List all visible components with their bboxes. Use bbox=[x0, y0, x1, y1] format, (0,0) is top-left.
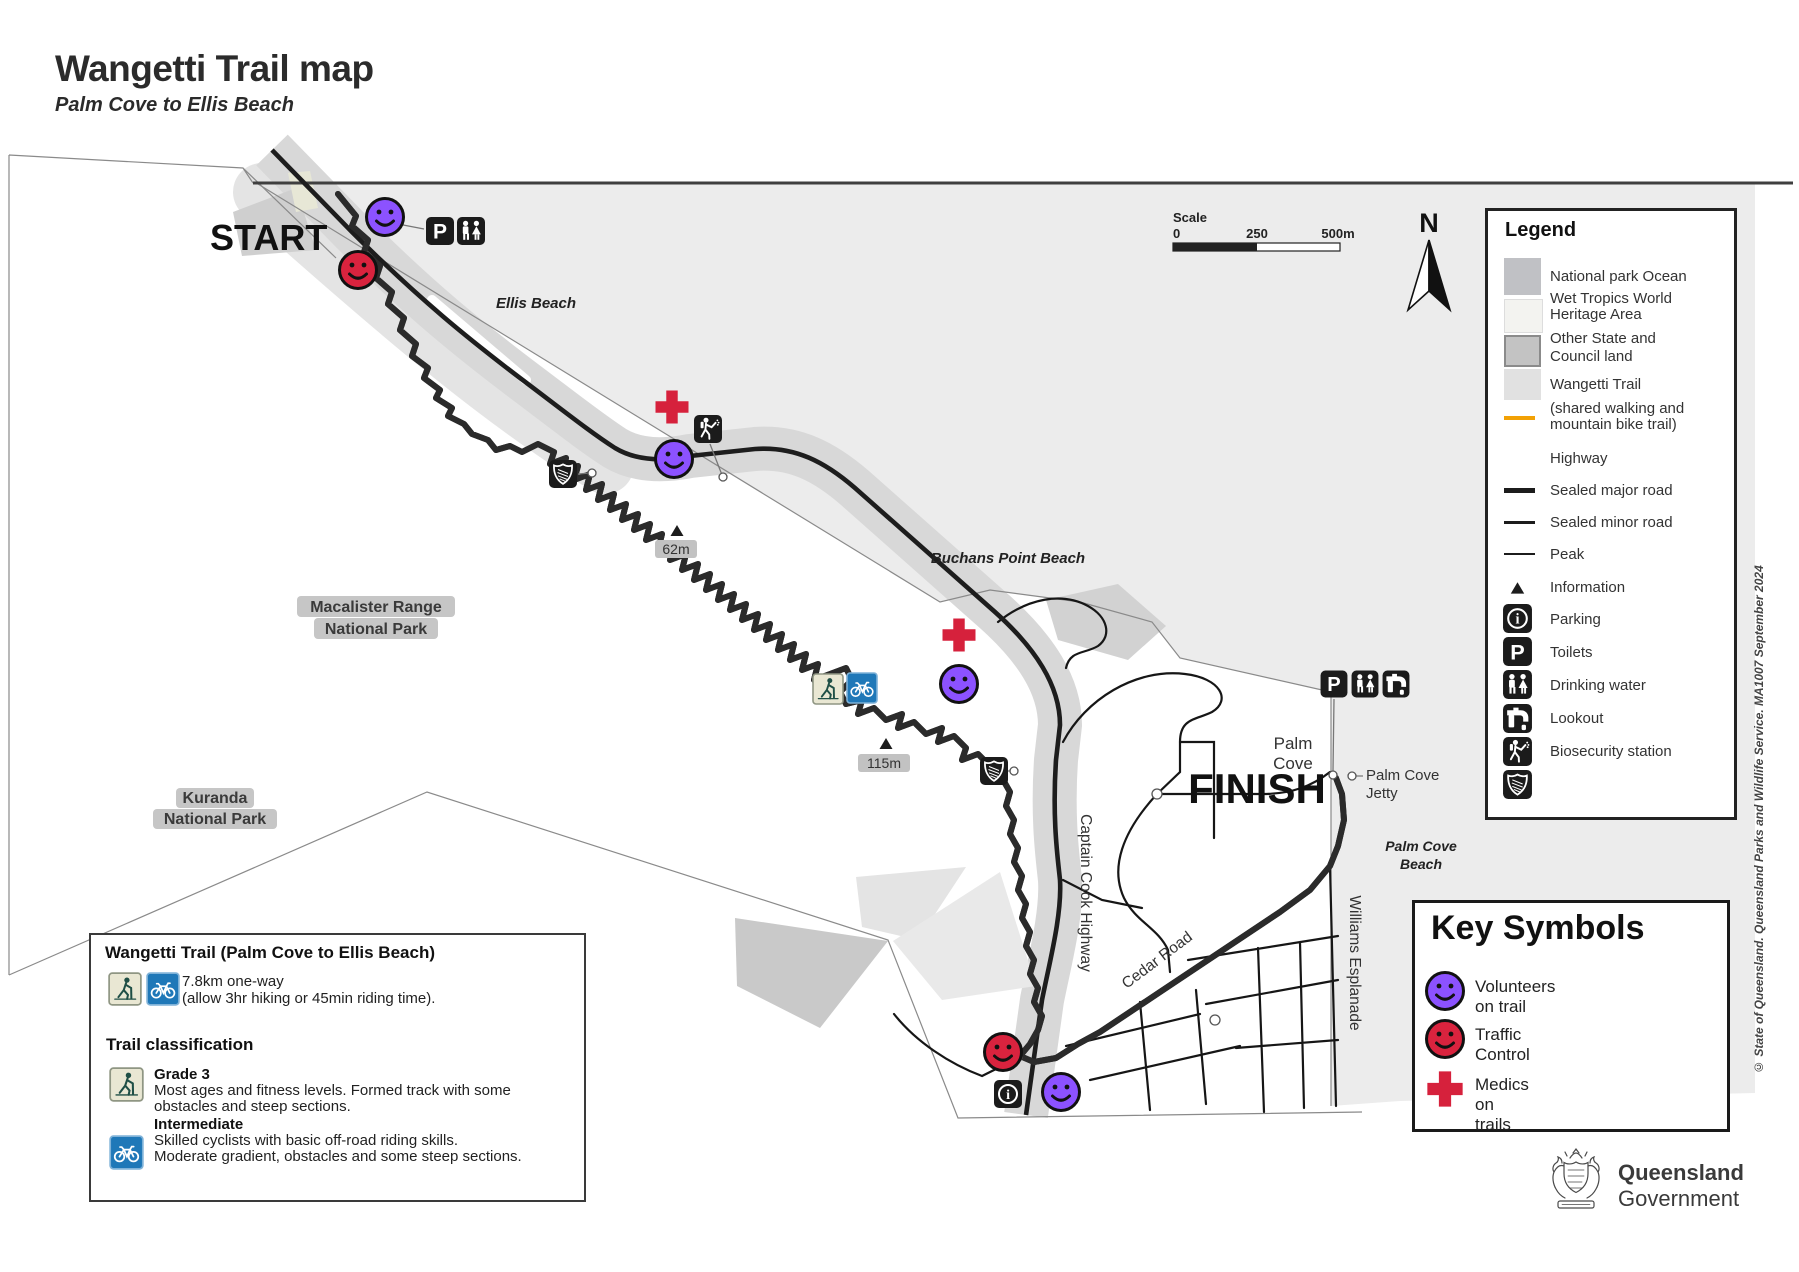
cedar-road-label: Cedar Road bbox=[1119, 928, 1196, 992]
drinking-water-tap-icon bbox=[1502, 703, 1533, 734]
biosecurity-station-icon bbox=[694, 415, 722, 443]
north-label: N bbox=[1419, 208, 1439, 238]
legend-item-label: Sealed major road bbox=[1550, 483, 1673, 499]
key-symbols-label: Traffic Control bbox=[1475, 1025, 1530, 1065]
traffic-control-smiley-icon bbox=[340, 252, 377, 289]
medic-cross-icon bbox=[943, 619, 976, 652]
cycling-trail-marker-icon bbox=[847, 673, 877, 703]
distance-line1: 7.8km one-way bbox=[182, 973, 284, 990]
legend-item-label: Heritage Area bbox=[1550, 306, 1642, 323]
legend-item-label: (shared walking and bbox=[1550, 400, 1684, 417]
hiking-trail-marker-icon bbox=[813, 674, 843, 704]
intermediate-line1: Skilled cyclists with basic off-road rid… bbox=[154, 1132, 458, 1149]
swatch-other-state-council bbox=[1504, 335, 1541, 367]
kuranda-label-line2: National Park bbox=[164, 811, 266, 828]
scale-tick-250: 250 bbox=[1246, 226, 1268, 241]
toilets-icon bbox=[1352, 671, 1379, 698]
volunteers-smiley-icon bbox=[941, 666, 978, 703]
classification-title: Trail classification bbox=[106, 1035, 253, 1055]
coat-of-arms-icon bbox=[1540, 1146, 1612, 1222]
trail-line-symbol bbox=[1504, 416, 1535, 420]
palm-cove-label-line1: Palm bbox=[1274, 734, 1313, 753]
legend-item-label: National park Ocean bbox=[1550, 269, 1687, 285]
volunteers-smiley-icon bbox=[1423, 969, 1467, 1013]
key-symbols-label: Medics on trails bbox=[1475, 1075, 1529, 1135]
copyright-notice: © State of Queensland. Queensland Parks … bbox=[1752, 565, 1774, 1075]
legend-item-label: Toilets bbox=[1550, 645, 1593, 661]
ellis-beach-label: Ellis Beach bbox=[496, 295, 576, 312]
trail-info-panel: Wangetti Trail (Palm Cove to Ellis Beach… bbox=[89, 933, 586, 1202]
key-symbols-label: Volunteers on trail bbox=[1475, 977, 1555, 1017]
intermediate-line2: Moderate gradient, obstacles and some st… bbox=[154, 1148, 522, 1165]
volunteers-smiley-icon bbox=[367, 199, 404, 236]
government-name: Queensland bbox=[1618, 1160, 1744, 1186]
parking-icon bbox=[1321, 671, 1348, 698]
legend-item-label: Biosecurity station bbox=[1550, 744, 1672, 760]
williams-esplanade-label: Williams Esplanade bbox=[1346, 895, 1363, 1030]
shield-icon bbox=[1502, 769, 1533, 800]
sealed-minor-road-symbol bbox=[1504, 521, 1535, 524]
volunteers-smiley-icon bbox=[1043, 1074, 1080, 1111]
peak-line-symbol bbox=[1504, 553, 1535, 555]
peak-115m: 115m bbox=[858, 738, 910, 772]
grade-line1: Most ages and fitness levels. Formed tra… bbox=[154, 1082, 511, 1099]
legend-title: Legend bbox=[1505, 219, 1576, 242]
peak-115m-label: 115m bbox=[867, 755, 901, 771]
toilets-icon bbox=[1502, 669, 1533, 700]
scale-tick-0: 0 bbox=[1173, 226, 1180, 241]
swatch-wangetti-trail bbox=[1504, 369, 1541, 400]
medic-cross-icon bbox=[1425, 1069, 1465, 1109]
legend-item-label: Drinking water bbox=[1550, 678, 1646, 694]
legend-item-label: Other State and bbox=[1550, 330, 1656, 347]
biosecurity-station-icon bbox=[1502, 736, 1533, 767]
macalister-label-line1: Macalister Range bbox=[310, 599, 442, 616]
cycling-badge-icon bbox=[145, 971, 181, 1007]
volunteers-smiley-icon bbox=[656, 441, 693, 478]
legend-item-label: Sealed minor road bbox=[1550, 515, 1673, 531]
start-label: START bbox=[210, 217, 327, 258]
legend-item-label: Wangetti Trail bbox=[1550, 377, 1641, 393]
grade-title: Grade 3 bbox=[154, 1066, 210, 1083]
palm-cove-beach-label-line1: Palm Cove bbox=[1385, 838, 1457, 854]
peak-62m: 62m bbox=[655, 525, 697, 558]
captain-cook-highway-label: Captain Cook Highway bbox=[1077, 814, 1094, 972]
legend-item-label: Peak bbox=[1550, 547, 1584, 563]
parking-icon bbox=[1502, 636, 1533, 667]
kuranda-label-line1: Kuranda bbox=[183, 790, 248, 807]
key-symbols-title: Key Symbols bbox=[1431, 909, 1645, 948]
legend-item-label: Parking bbox=[1550, 612, 1601, 628]
legend-item-label: Lookout bbox=[1550, 711, 1603, 727]
swatch-national-park-ocean bbox=[1504, 258, 1541, 295]
legend-item-label: Highway bbox=[1550, 451, 1608, 467]
legend-item-label: Council land bbox=[1550, 348, 1633, 365]
key-symbols-panel: Key Symbols Volunteers on trail Traffic … bbox=[1412, 900, 1730, 1132]
parcel-medium bbox=[735, 918, 888, 1028]
drinking-water-tap-icon bbox=[1383, 671, 1410, 698]
scale-title: Scale bbox=[1173, 210, 1207, 225]
buchans-point-beach-label: Buchans Point Beach bbox=[931, 550, 1085, 567]
palm-cove-jetty-label-line1: Palm Cove bbox=[1366, 767, 1439, 784]
parking-icon bbox=[426, 217, 454, 245]
trail-map-page: Wangetti Trail map Palm Cove to Ellis Be… bbox=[0, 0, 1799, 1272]
info-box-title: Wangetti Trail (Palm Cove to Ellis Beach… bbox=[105, 943, 435, 963]
palm-cove-label-line2: Cove bbox=[1273, 754, 1313, 773]
shield-icon bbox=[549, 460, 577, 488]
traffic-control-smiley-icon bbox=[985, 1034, 1022, 1071]
toilets-icon bbox=[457, 217, 485, 245]
scale-tick-500: 500m bbox=[1321, 226, 1354, 241]
macalister-label-line2: National Park bbox=[325, 621, 427, 638]
information-icon bbox=[994, 1080, 1022, 1108]
shield-icon bbox=[980, 757, 1008, 785]
palm-cove-jetty-label-line2: Jetty bbox=[1366, 785, 1398, 802]
hiking-badge-icon bbox=[108, 1066, 145, 1103]
legend-item-label: Wet Tropics World bbox=[1550, 290, 1672, 307]
sealed-major-road-symbol bbox=[1504, 488, 1535, 493]
distance-line2: (allow 3hr hiking or 45min riding time). bbox=[182, 990, 435, 1007]
grade-line2: obstacles and steep sections. bbox=[154, 1098, 351, 1115]
traffic-control-smiley-icon bbox=[1423, 1017, 1467, 1061]
legend-item-label: mountain bike trail) bbox=[1550, 416, 1677, 433]
cycling-badge-icon bbox=[108, 1134, 145, 1171]
swatch-wet-tropics bbox=[1504, 299, 1543, 333]
government-dept: Government bbox=[1618, 1186, 1739, 1212]
information-icon bbox=[1502, 603, 1533, 634]
peak-62m-label: 62m bbox=[662, 541, 689, 557]
legend-item-label: Information bbox=[1550, 580, 1625, 596]
intermediate-title: Intermediate bbox=[154, 1116, 243, 1133]
hiking-badge-icon bbox=[107, 971, 143, 1007]
queensland-government-logo: Queensland Government bbox=[1540, 1146, 1780, 1226]
information-triangle-icon bbox=[1502, 574, 1533, 605]
legend-panel: Legend National park Ocean Wet Tropics W… bbox=[1485, 208, 1737, 820]
palm-cove-beach-label-line2: Beach bbox=[1400, 856, 1442, 872]
